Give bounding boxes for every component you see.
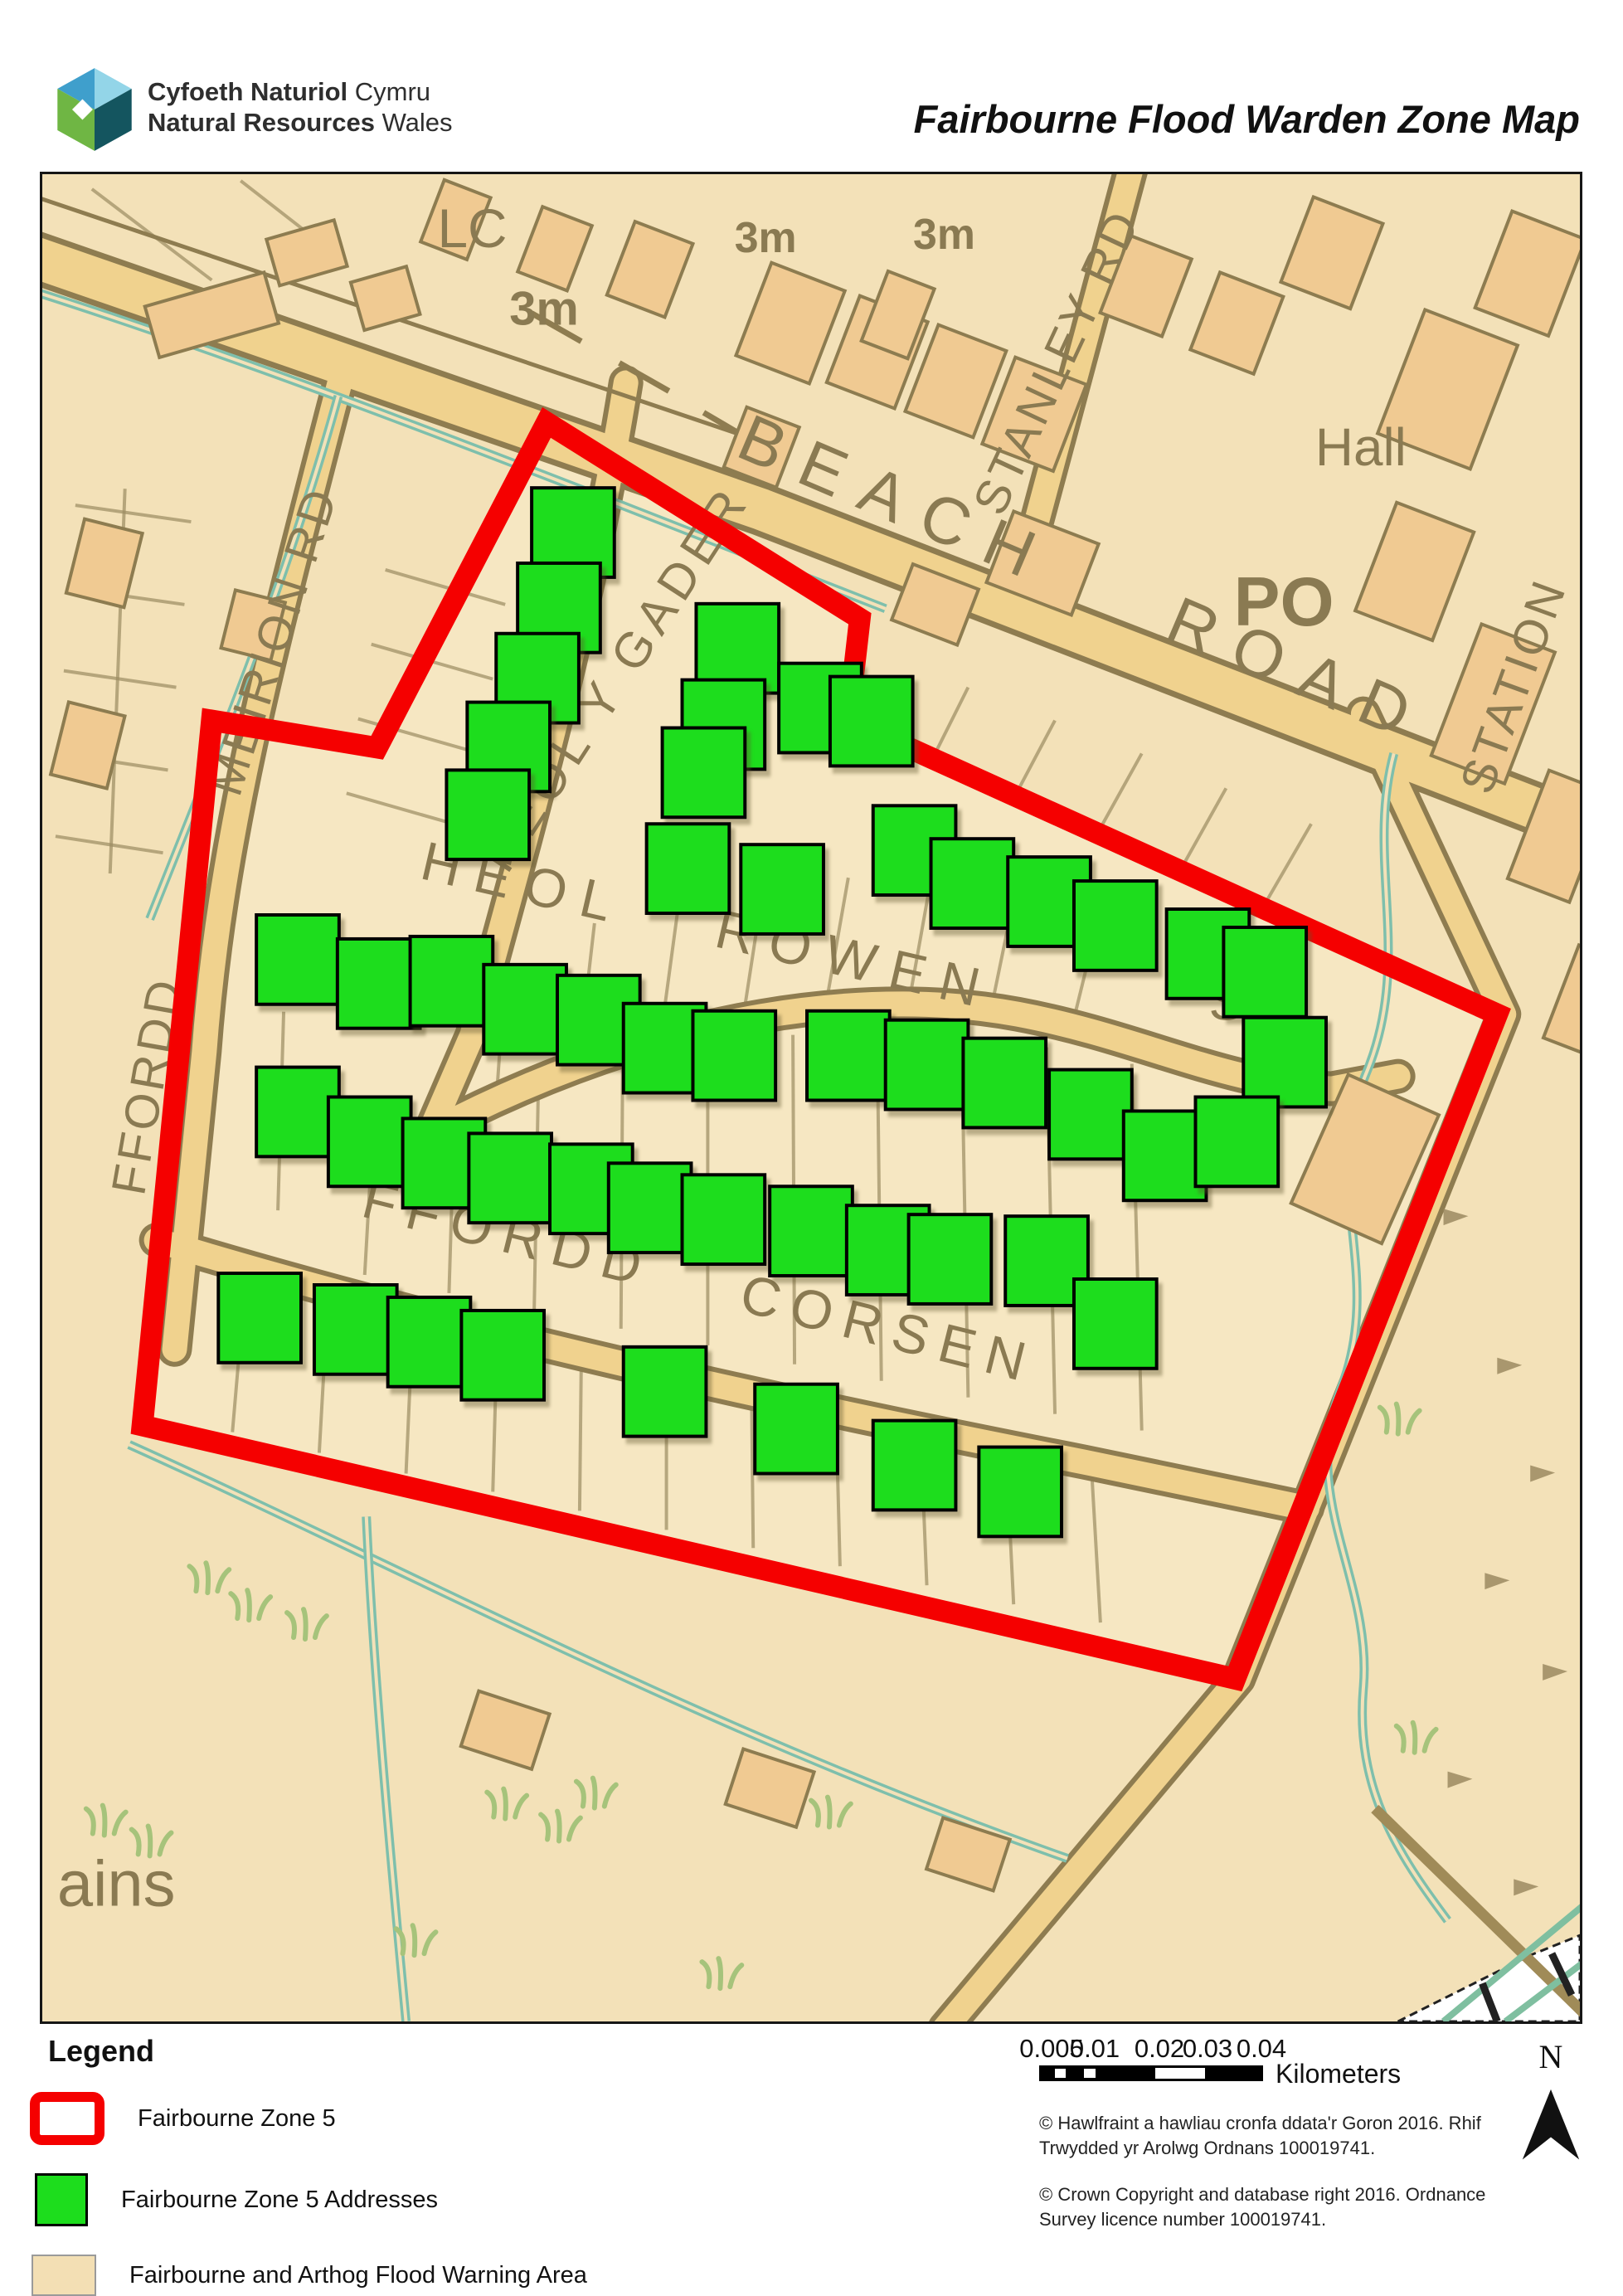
label-po: PO <box>1234 562 1334 640</box>
scale-unit: Kilometers <box>1276 2059 1401 2089</box>
address-square <box>314 1285 397 1374</box>
address-square <box>469 1133 552 1223</box>
zone5-swatch-icon <box>30 2092 104 2145</box>
legend-item-label: Fairbourne Zone 5 Addresses <box>121 2187 438 2214</box>
label-3m-b: 3m <box>735 213 797 261</box>
scale-bar <box>1039 2065 1263 2081</box>
address-square <box>770 1186 853 1276</box>
legend-title: Legend <box>48 2034 587 2069</box>
flood-area-swatch-icon <box>32 2255 96 2296</box>
legend-item-label: Fairbourne Zone 5 <box>138 2105 336 2133</box>
page-title: Fairbourne Flood Warden Zone Map <box>914 96 1580 142</box>
org-cy-rest: Cymru <box>347 77 430 106</box>
address-square <box>1124 1111 1207 1200</box>
address-square <box>830 677 913 766</box>
address-square <box>909 1214 992 1304</box>
address-square <box>647 824 730 913</box>
address-square <box>624 1347 707 1437</box>
copyright-welsh: © Hawlfraint a hawliau cronfa ddata'r Go… <box>1039 2111 1487 2161</box>
scale-tick: 0.02 <box>1135 2034 1184 2064</box>
north-label: N <box>1511 2037 1591 2076</box>
address-square <box>873 1421 956 1510</box>
legend: Legend Fairbourne Zone 5 Fairbourne Zone… <box>30 2034 587 2296</box>
address-square <box>931 839 1014 928</box>
address-square <box>979 1447 1062 1537</box>
label-ains: ains <box>57 1848 176 1919</box>
address-square <box>328 1097 411 1187</box>
label-3m-a: 3m <box>509 283 579 336</box>
map-frame[interactable]: LC 3m 3m 3m BEACH ROAD STANLEY RD STATIO… <box>40 172 1582 2024</box>
label-hall: Hall <box>1315 417 1407 477</box>
org-name: Cyfoeth Naturiol Cymru Natural Resources… <box>148 76 453 138</box>
address-square <box>338 939 420 1029</box>
address-square <box>1074 881 1157 970</box>
north-arrow: N <box>1511 2037 1591 2180</box>
scale-tick: 0.03 <box>1183 2034 1232 2064</box>
addresses-swatch-icon <box>35 2173 88 2226</box>
copyright-english: © Crown Copyright and database right 201… <box>1039 2182 1487 2232</box>
north-arrow-icon <box>1514 2076 1588 2176</box>
address-square <box>963 1039 1046 1128</box>
address-square <box>886 1020 969 1110</box>
address-square <box>683 1175 765 1264</box>
address-square <box>741 844 824 934</box>
org-en-rest: Wales <box>375 108 453 137</box>
address-square <box>1243 1018 1326 1107</box>
address-square <box>1196 1097 1279 1187</box>
address-square <box>609 1163 692 1253</box>
address-square <box>1223 927 1306 1017</box>
address-square <box>446 770 529 859</box>
legend-item-addresses: Fairbourne Zone 5 Addresses <box>30 2173 587 2226</box>
label-3m-c: 3m <box>913 210 975 258</box>
address-square <box>663 728 746 818</box>
scale-tick-labels: 0.0050.010.020.030.04 <box>1039 2034 1504 2064</box>
address-square <box>483 965 566 1054</box>
org-en-bold: Natural Resources <box>148 108 375 137</box>
label-lc: LC <box>437 197 507 259</box>
scale-bar-block: 0.0050.010.020.030.04 Kilometers © Hawlf… <box>1039 2034 1504 2232</box>
legend-item-zone5: Fairbourne Zone 5 <box>30 2092 587 2145</box>
address-square <box>411 936 493 1026</box>
map-canvas[interactable]: LC 3m 3m 3m BEACH ROAD STANLEY RD STATIO… <box>42 174 1580 2021</box>
address-square <box>807 1011 890 1101</box>
address-square <box>1049 1070 1132 1160</box>
address-square <box>755 1384 838 1474</box>
org-cy-bold: Cyfoeth Naturiol <box>148 77 347 106</box>
address-square <box>692 1011 775 1101</box>
address-square <box>218 1273 301 1363</box>
address-square <box>256 915 339 1004</box>
nrw-logo-icon <box>51 66 138 153</box>
address-square <box>461 1311 544 1400</box>
scale-tick: 0.01 <box>1070 2034 1120 2064</box>
legend-item-label: Fairbourne and Arthog Flood Warning Area <box>129 2262 587 2289</box>
address-square <box>1074 1279 1157 1369</box>
page: { "header": { "org_cy_bold": "Cyfoeth Na… <box>0 0 1623 2296</box>
address-square <box>388 1297 471 1387</box>
legend-item-flood: Fairbourne and Arthog Flood Warning Area <box>30 2255 587 2296</box>
